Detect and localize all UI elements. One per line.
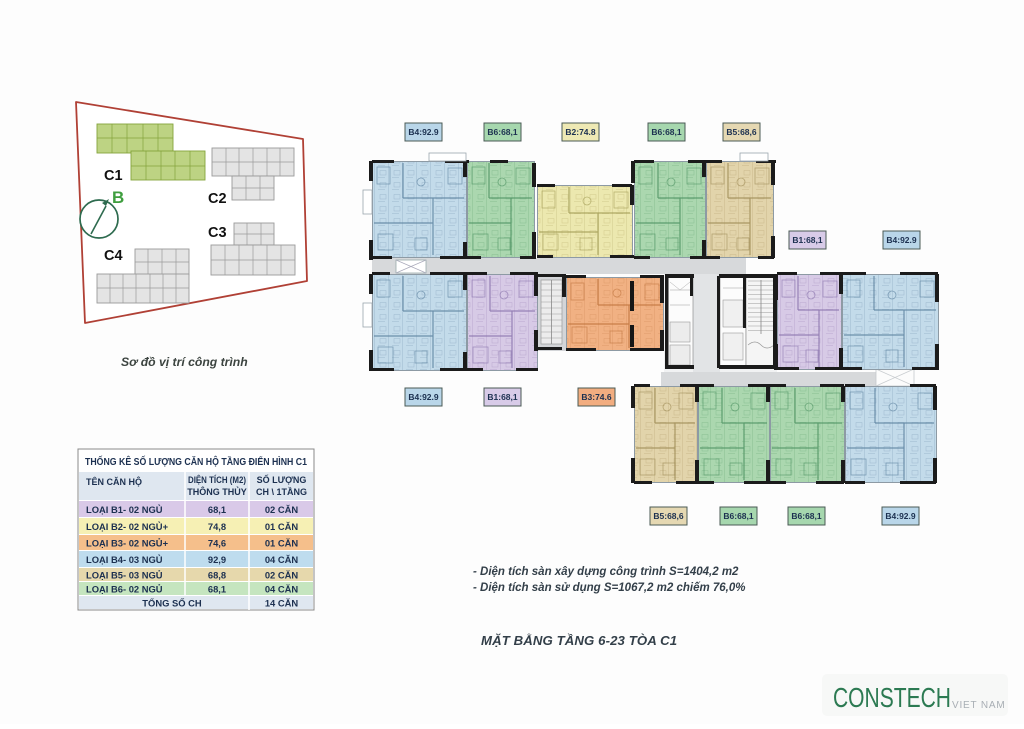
svg-text:74,8: 74,8: [208, 521, 226, 532]
svg-text:B1:68,1: B1:68,1: [792, 235, 823, 245]
svg-text:B6:68,1: B6:68,1: [723, 511, 754, 521]
svg-text:B5:68,6: B5:68,6: [653, 511, 684, 521]
svg-text:- Diện tích sàn sử dụng S=1067: - Diện tích sàn sử dụng S=1067,2 m2 chiế…: [473, 582, 746, 594]
svg-text:SỐ LƯỢNG: SỐ LƯỢNG: [257, 474, 307, 485]
svg-text:B4:92.9: B4:92.9: [885, 511, 916, 521]
svg-text:VIET NAM: VIET NAM: [952, 700, 1005, 711]
svg-text:LOẠI B4- 03 NGỦ: LOẠI B4- 03 NGỦ: [86, 554, 163, 565]
svg-text:04 CĂN: 04 CĂN: [265, 584, 299, 595]
svg-text:DIỆN TÍCH (M2): DIỆN TÍCH (M2): [188, 474, 246, 485]
svg-text:B3:74.6: B3:74.6: [581, 392, 612, 402]
svg-text:B2:74.8: B2:74.8: [565, 127, 596, 137]
svg-text:68,8: 68,8: [208, 570, 226, 581]
svg-text:THÔNG THỦY: THÔNG THỦY: [187, 486, 247, 497]
svg-text:LOẠI B5- 03 NGỦ: LOẠI B5- 03 NGỦ: [86, 570, 163, 581]
svg-text:C1: C1: [104, 168, 123, 184]
svg-text:TỔNG SỐ CH: TỔNG SỐ CH: [142, 598, 202, 609]
svg-text:B4:92.9: B4:92.9: [886, 235, 917, 245]
svg-text:LOẠI B1- 02 NGỦ: LOẠI B1- 02 NGỦ: [86, 504, 163, 515]
svg-text:04 CĂN: 04 CĂN: [265, 554, 299, 565]
svg-text:68,1: 68,1: [208, 584, 226, 595]
svg-text:B1:68,1: B1:68,1: [487, 392, 518, 402]
svg-text:MẶT BẰNG TẦNG 6-23 TÒA C1: MẶT BẰNG TẦNG 6-23 TÒA C1: [481, 633, 677, 648]
svg-text:01 CĂN: 01 CĂN: [265, 521, 299, 532]
svg-text:CONSTECH: CONSTECH: [833, 682, 951, 713]
svg-text:02 CĂN: 02 CĂN: [265, 504, 299, 515]
svg-text:14 CĂN: 14 CĂN: [265, 598, 299, 609]
svg-text:CH \ 1TẦNG: CH \ 1TẦNG: [256, 487, 307, 497]
svg-text:- Diện tích sàn xây dựng công: - Diện tích sàn xây dựng công trình S=14…: [473, 566, 739, 578]
svg-text:LOẠI B3- 02 NGỦ+: LOẠI B3- 02 NGỦ+: [86, 538, 169, 549]
svg-text:THỐNG KÊ SỐ LƯỢNG CĂN HỘ TẦNG: THỐNG KÊ SỐ LƯỢNG CĂN HỘ TẦNG ĐIỂN HÌNH …: [85, 454, 307, 468]
svg-text:92,9: 92,9: [208, 554, 226, 565]
svg-text:C4: C4: [104, 248, 123, 264]
svg-text:B6:68,1: B6:68,1: [791, 511, 822, 521]
svg-text:B4:92.9: B4:92.9: [408, 127, 439, 137]
svg-text:LOẠI B6- 02 NGỦ: LOẠI B6- 02 NGỦ: [86, 584, 163, 595]
svg-text:01 CĂN: 01 CĂN: [265, 538, 299, 549]
svg-text:B6:68,1: B6:68,1: [651, 127, 682, 137]
svg-text:LOẠI B2- 02 NGỦ+: LOẠI B2- 02 NGỦ+: [86, 521, 169, 532]
svg-text:B4:92.9: B4:92.9: [408, 392, 439, 402]
svg-text:C3: C3: [208, 225, 227, 241]
svg-text:02 CĂN: 02 CĂN: [265, 570, 299, 581]
svg-text:B: B: [112, 188, 124, 207]
svg-text:B5:68,6: B5:68,6: [726, 127, 757, 137]
svg-text:C2: C2: [208, 191, 227, 207]
svg-text:B6:68,1: B6:68,1: [487, 127, 518, 137]
svg-text:Sơ đồ vị trí công trình: Sơ đồ vị trí công trình: [121, 355, 248, 369]
svg-text:68,1: 68,1: [208, 504, 226, 515]
svg-text:TÊN CĂN HỘ: TÊN CĂN HỘ: [86, 476, 142, 487]
svg-text:74,6: 74,6: [208, 538, 226, 549]
